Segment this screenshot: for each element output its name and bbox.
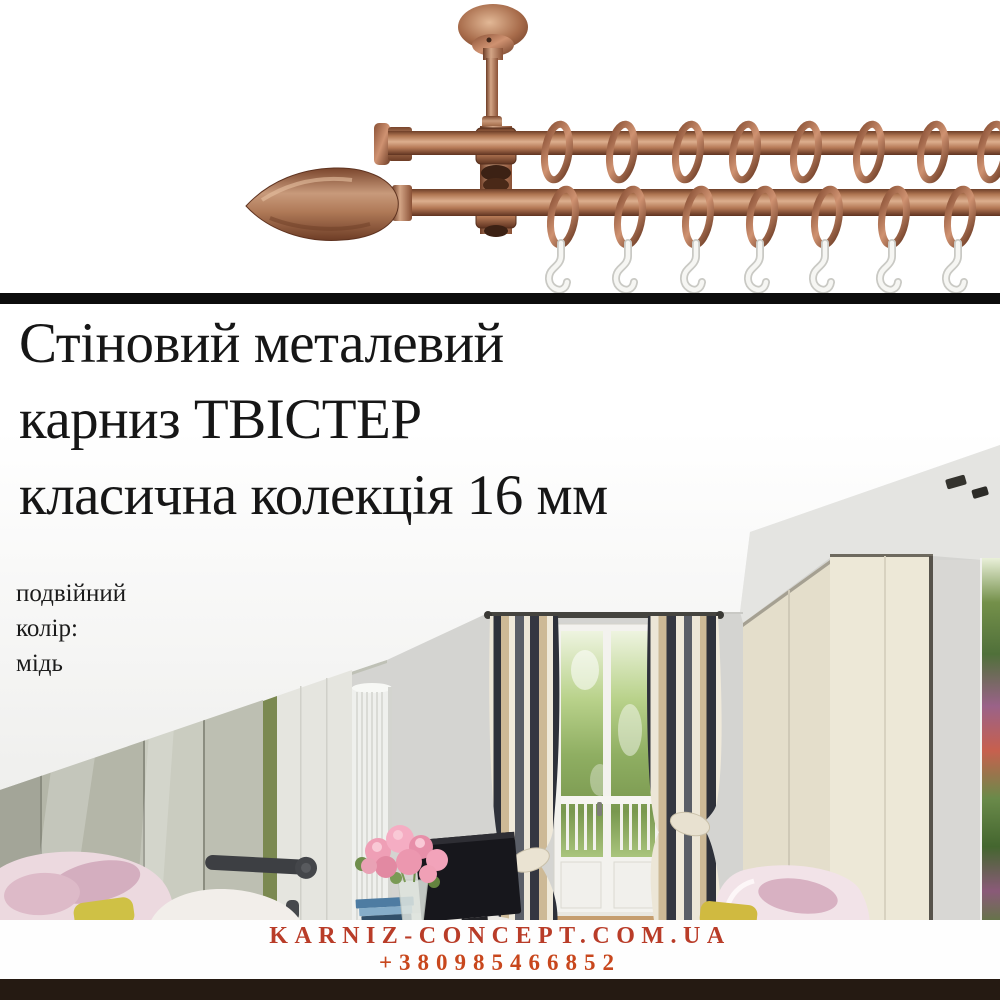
spec-color-value: мідь [16,646,126,681]
title-line-3: класична колекція 16 мм [19,458,979,534]
curtain-rod-photo [0,0,1000,293]
title-line-2: карниз ТВІСТЕР [19,382,979,458]
contact-strip: KARNIZ-CONCEPT.COM.UA +380985466852 [0,920,1000,979]
striped-curtain-right [647,616,722,928]
promo-poster: Стіновий металевий карниз ТВІСТЕР класич… [0,0,1000,1000]
balcony-railing [561,796,655,804]
title-line-1: Стіновий металевий [19,306,979,382]
website-url: KARNIZ-CONCEPT.COM.UA [0,923,1000,949]
divider-bar [0,293,1000,304]
phone-number: +380985466852 [0,949,1000,977]
radiator [352,683,392,928]
product-specs: подвійний колір: мідь [16,576,126,681]
spec-color-label: колір: [16,611,126,646]
interior-door [277,670,352,928]
footer-bar [0,979,1000,1000]
spec-type: подвійний [16,576,126,611]
product-title: Стіновий металевий карниз ТВІСТЕР класич… [19,306,979,534]
door-green-edge [263,696,277,928]
wall-artwork [980,558,1000,928]
window-handle [597,802,602,816]
